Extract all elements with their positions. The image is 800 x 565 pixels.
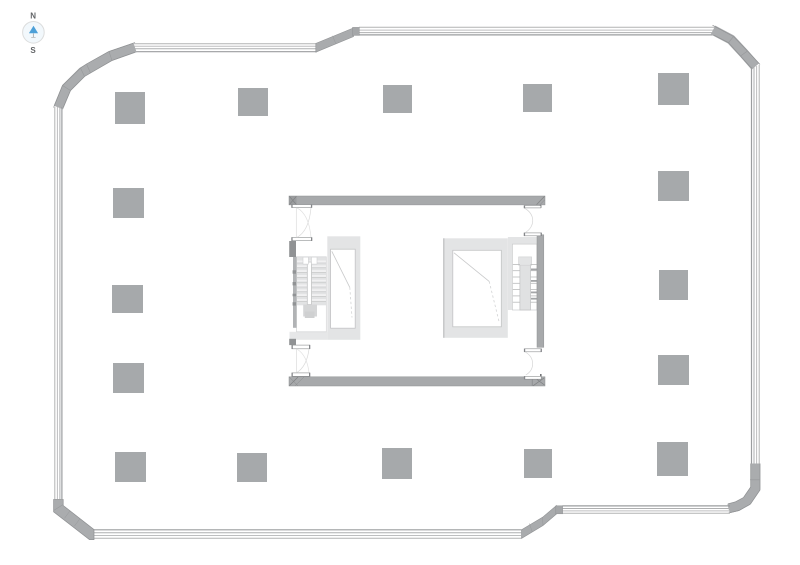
svg-text:N: N xyxy=(30,12,36,21)
svg-text:S: S xyxy=(30,46,36,55)
